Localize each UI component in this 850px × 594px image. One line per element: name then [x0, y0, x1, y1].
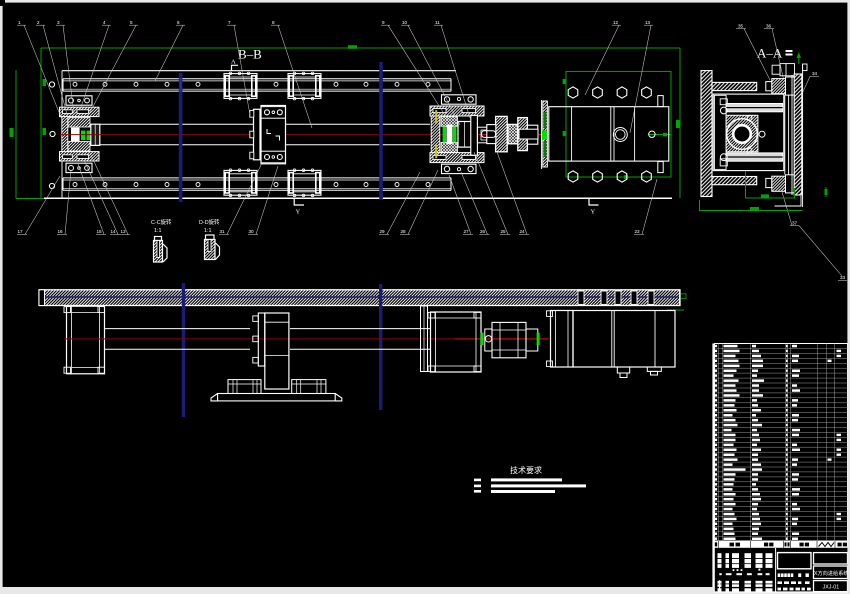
svg-text:31: 31 — [220, 229, 226, 234]
svg-text:13: 13 — [645, 20, 651, 25]
svg-text:14: 14 — [111, 229, 117, 234]
svg-text:35: 35 — [738, 23, 744, 28]
svg-text:13: 13 — [121, 229, 127, 234]
svg-text:12: 12 — [613, 20, 619, 25]
svg-text:25: 25 — [501, 229, 507, 234]
svg-text:11: 11 — [435, 20, 440, 25]
svg-text:36: 36 — [766, 23, 772, 28]
svg-text:1: 1 — [18, 20, 21, 25]
svg-text:D-D旋转: D-D旋转 — [199, 218, 220, 226]
svg-text:X方向进给系统: X方向进给系统 — [814, 569, 849, 577]
svg-text:15: 15 — [97, 229, 103, 234]
svg-text:JXJ-01: JXJ-01 — [823, 585, 840, 591]
svg-text:29: 29 — [380, 229, 386, 234]
svg-text:2: 2 — [37, 20, 40, 25]
svg-text:7: 7 — [228, 20, 231, 25]
svg-text:33: 33 — [840, 275, 846, 280]
svg-text:37: 37 — [792, 220, 798, 225]
svg-text:6: 6 — [177, 20, 180, 25]
svg-text:B–B: B–B — [238, 47, 262, 62]
svg-text:9: 9 — [382, 20, 385, 25]
svg-text:28: 28 — [401, 229, 407, 234]
svg-text:1:1: 1:1 — [154, 228, 162, 234]
svg-text:5: 5 — [130, 20, 133, 25]
svg-text:4: 4 — [103, 20, 106, 25]
svg-text:27: 27 — [464, 229, 470, 234]
svg-text:26: 26 — [480, 229, 486, 234]
svg-text:23: 23 — [635, 229, 641, 234]
svg-text:34: 34 — [812, 71, 818, 76]
svg-text:A: A — [231, 59, 236, 66]
svg-text:8: 8 — [272, 20, 275, 25]
svg-text:Y: Y — [591, 209, 596, 216]
svg-text:10: 10 — [402, 20, 408, 25]
svg-text:30: 30 — [249, 229, 255, 234]
svg-text:16: 16 — [58, 229, 64, 234]
svg-text:24: 24 — [520, 229, 526, 234]
svg-text:技术要求: 技术要求 — [510, 465, 542, 475]
svg-text:3: 3 — [57, 20, 60, 25]
svg-text:Y: Y — [296, 209, 301, 216]
svg-text:17: 17 — [18, 229, 24, 234]
svg-text:1:1: 1:1 — [204, 228, 212, 234]
svg-text:C-C旋转: C-C旋转 — [151, 218, 172, 226]
